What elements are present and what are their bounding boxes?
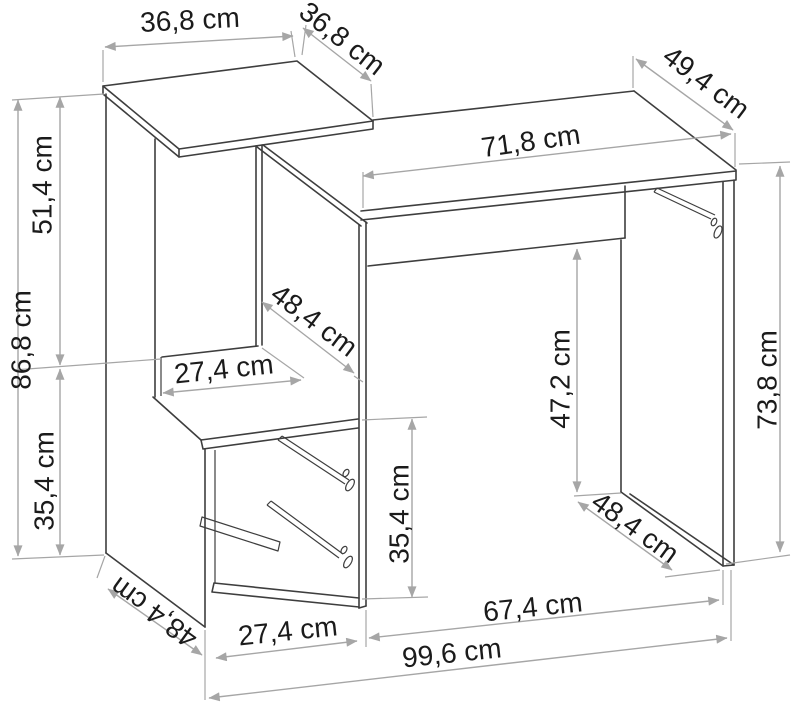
dim-label-upper-section-height: 51,4 cm: [26, 135, 57, 235]
drawer-rail-lower: [267, 501, 354, 569]
tower-lower-cabinet: [200, 436, 359, 627]
dim-label-kneespace-width: 67,4 cm: [482, 586, 584, 627]
dim-label-desktop-depth: 49,4 cm: [657, 40, 755, 125]
furniture-dimension-diagram: 36,8 cm 36,8 cm 49,4 cm 71,8 cm 51,4 cm …: [0, 0, 800, 716]
desk-apron: [368, 186, 625, 266]
dim-line-top-shelf-width: [105, 36, 293, 47]
desk-bracket: [654, 188, 724, 239]
dim-label-desktop-width: 71,8 cm: [479, 119, 582, 164]
drawer-rail-upper: [278, 436, 356, 492]
dim-label-desk-height: 73,8 cm: [751, 330, 782, 430]
dim-label-left-total-height: 86,8 cm: [5, 290, 36, 390]
dim-label-middle-compartment-depth: 48,4 cm: [265, 278, 363, 363]
dim-label-kneespace-height: 47,2 cm: [544, 329, 575, 429]
dim-label-base-depth: 48,4 cm: [104, 571, 203, 655]
dim-label-drawer-opening-height: 35,4 cm: [383, 464, 414, 564]
dim-label-left-lower-height: 35,4 cm: [28, 431, 59, 531]
dim-label-top-shelf-width: 36,8 cm: [139, 2, 240, 38]
dim-label-total-width: 99,6 cm: [401, 632, 503, 673]
desk: [361, 91, 736, 566]
tower-top-panel: [103, 61, 373, 157]
diagram-canvas: 36,8 cm 36,8 cm 49,4 cm 71,8 cm 51,4 cm …: [0, 0, 800, 716]
